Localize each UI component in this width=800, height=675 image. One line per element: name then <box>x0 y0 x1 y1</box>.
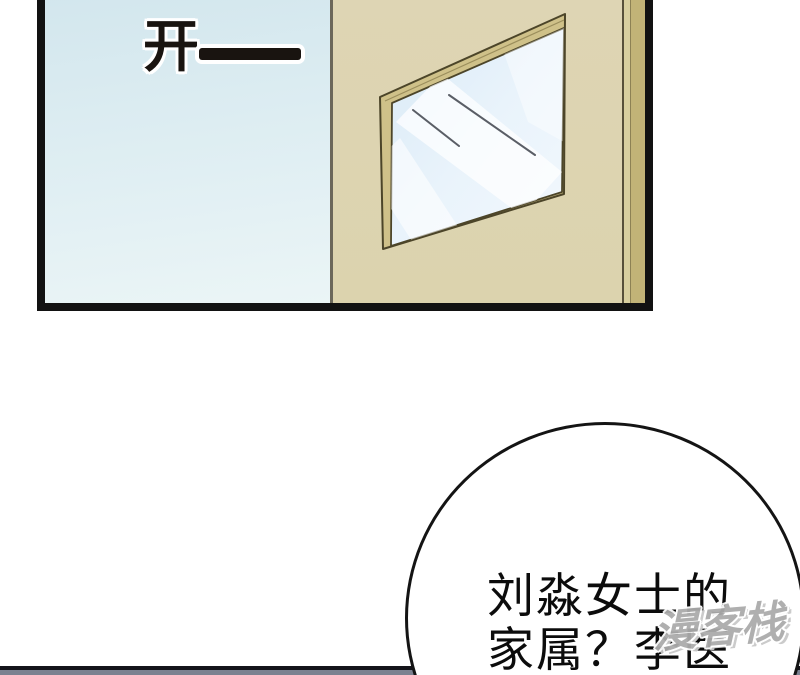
sfx-open: 开 <box>143 20 199 76</box>
door-jamb-strip <box>630 0 645 303</box>
sfx-open-dash <box>199 48 301 60</box>
comic-page: 开 刘淼女士的 家属？李医 漫客栈 <box>0 0 800 675</box>
sfx-open-character: 开 <box>143 15 199 80</box>
door-window <box>370 0 575 265</box>
